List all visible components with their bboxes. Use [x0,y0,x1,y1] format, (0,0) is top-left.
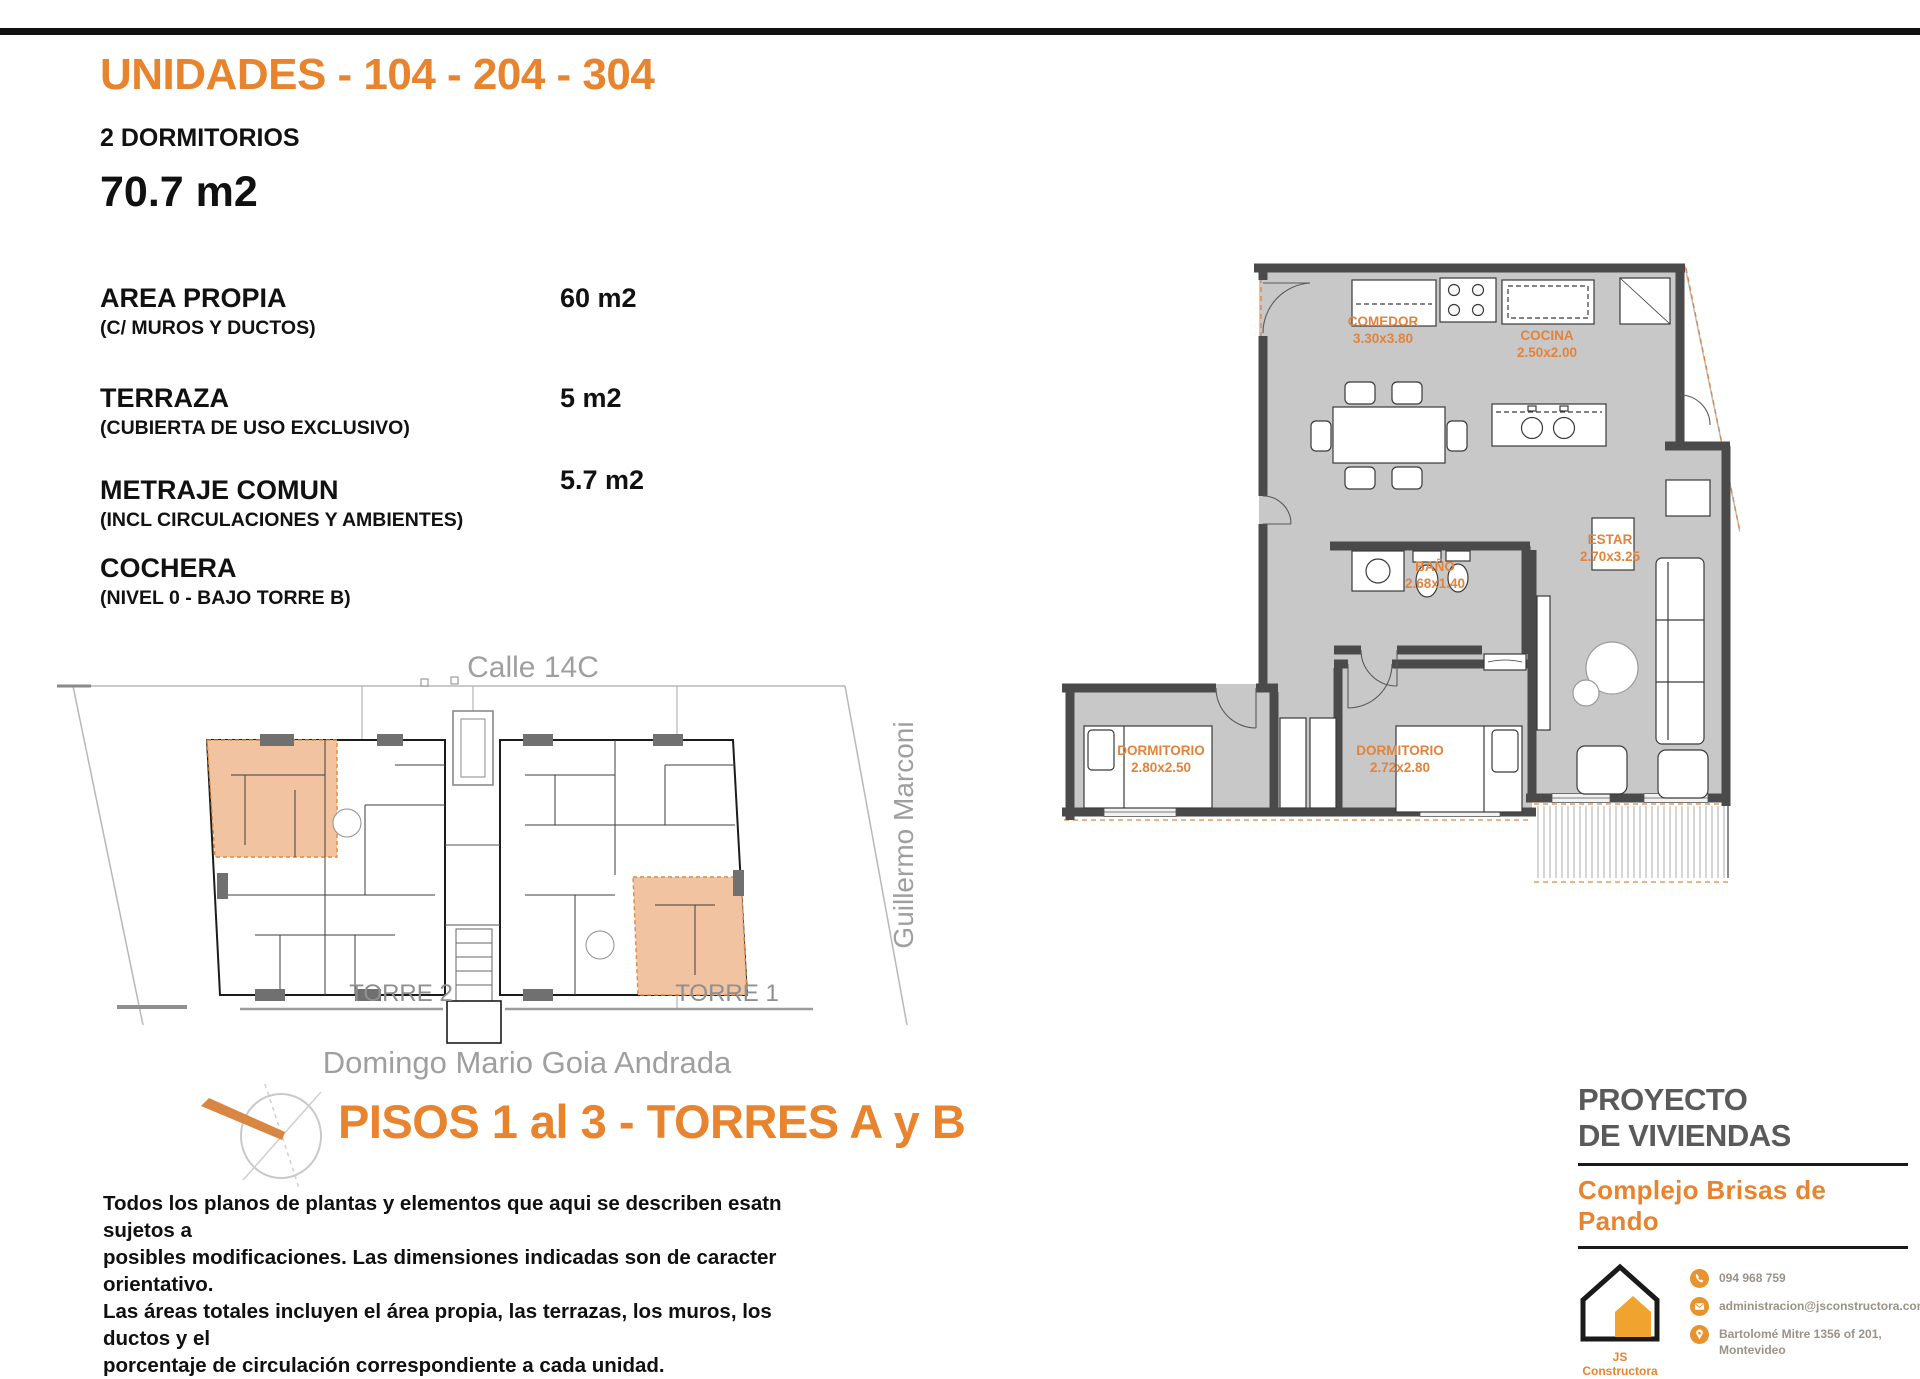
room-label-comedor: COMEDOR [1348,314,1419,329]
room-dims-dormitorio-2: 2.72x2.80 [1370,760,1430,775]
room-dims-dormitorio-1: 2.80x2.50 [1131,760,1191,775]
area-spec-table: AREA PROPIA (C/ MUROS Y DUCTOS) 60 m2 TE… [100,283,680,643]
project-branding-block: PROYECTO DE VIVIENDAS Complejo Brisas de… [1578,1082,1914,1378]
disclaimer-line: Las áreas totales incluyen el área propi… [103,1298,823,1352]
highlighted-unit-torre1 [633,877,747,995]
torre-2-footprint [207,734,445,1001]
survey-marker [421,679,428,686]
spec-value: 5 m2 [560,383,622,414]
street-address: Bartolomé Mitre 1356 of 201, Montevideo [1719,1325,1882,1358]
disclaimer-line: posibles modificaciones. Las dimensiones… [103,1244,823,1298]
spec-label: METRAJE COMUN [100,475,463,506]
survey-marker [451,677,458,684]
disclaimer: Todos los planos de plantas y elementos … [103,1190,823,1379]
contact-email-row: administracion@jsconstructora.com [1690,1297,1920,1316]
torre-1-label: TORRE 1 [675,980,779,1007]
spec-label: COCHERA [100,553,351,584]
top-rule [0,28,1920,35]
site-plan: Calle 14C [55,645,935,1085]
street-label-domingo: Domingo Mario Goia Andrada [323,1045,732,1080]
brand-row: JS Constructora 094 968 759 administraci… [1578,1263,1914,1378]
spec-row-area-propia: AREA PROPIA (C/ MUROS Y DUCTOS) [100,283,316,340]
address-line1: Bartolomé Mitre 1356 of 201, [1719,1327,1882,1341]
floor-plan-drawing: COMEDOR 3.30x3.80 COCINA 2.50x2.00 BAÑO … [1040,240,1740,890]
kitchen-island [1492,404,1606,446]
spec-label: AREA PROPIA [100,283,316,314]
complex-name: Complejo Brisas de Pando [1578,1175,1914,1237]
contact-address-row: Bartolomé Mitre 1356 of 201, Montevideo [1690,1325,1920,1358]
contact-phone-row: 094 968 759 [1690,1269,1920,1288]
torre-2-label: TORRE 2 [349,980,453,1007]
spec-value: 5.7 m2 [560,465,644,496]
project-title-line2: DE VIVIENDAS [1578,1118,1914,1154]
room-label-cocina: COCINA [1520,328,1573,343]
company-logo: JS Constructora [1578,1263,1662,1378]
terrace-deck [1538,806,1728,878]
company-name: JS Constructora [1578,1350,1662,1378]
north-compass-icon [193,1080,348,1192]
highlighted-unit-torre2 [207,740,337,857]
address-line2: Montevideo [1719,1343,1786,1357]
room-dims-comedor: 3.30x3.80 [1353,331,1413,346]
room-dims-bano: 2.68x1.40 [1405,576,1465,591]
divider-rule [1578,1246,1908,1249]
spec-sublabel: (CUBIERTA DE USO EXCLUSIVO) [100,417,410,440]
room-dims-cocina: 2.50x2.00 [1517,345,1577,360]
spec-value: 60 m2 [560,283,637,314]
room-label-bano: BAÑO [1415,559,1455,574]
phone-icon [1690,1269,1709,1288]
spec-row-cochera: COCHERA (NIVEL 0 - BAJO TORRE B) [100,553,351,610]
spec-sublabel: (C/ MUROS Y DUCTOS) [100,317,316,340]
page-title: UNIDADES - 104 - 204 - 304 [100,50,654,100]
total-area: 70.7 m2 [100,168,258,217]
spec-row-terraza: TERRAZA (CUBIERTA DE USO EXCLUSIVO) [100,383,410,440]
divider-rule [1578,1163,1908,1166]
location-pin-icon [1690,1325,1709,1344]
contact-list: 094 968 759 administracion@jsconstructor… [1690,1263,1920,1358]
email-address: administracion@jsconstructora.com [1719,1297,1920,1315]
pisos-heading: PISOS 1 al 3 - TORRES A y B [338,1094,965,1149]
street-label-calle-14c: Calle 14C [467,651,599,684]
room-label-dormitorio-2: DORMITORIO [1356,743,1444,758]
street-label-marconi: Guillermo Marconi [888,721,919,948]
room-label-dormitorio-1: DORMITORIO [1117,743,1205,758]
central-corridor [445,711,501,1043]
stairs [456,929,492,1001]
plant [1573,680,1599,706]
disclaimer-line: porcentaje de circulación correspondient… [103,1352,823,1379]
apartment-floor-plan: COMEDOR 3.30x3.80 COCINA 2.50x2.00 BAÑO … [1040,240,1740,890]
disclaimer-line: Todos los planos de plantas y elementos … [103,1190,823,1244]
project-title-line1: PROYECTO [1578,1082,1914,1118]
site-plan-drawing: Calle 14C [55,645,935,1085]
mail-icon [1690,1297,1709,1316]
phone-number: 094 968 759 [1719,1269,1786,1287]
room-dims-estar: 2.70x3.25 [1580,549,1641,564]
spec-label: TERRAZA [100,383,410,414]
torre-1-footprint [500,734,747,1001]
spec-row-metraje-comun: METRAJE COMUN (INCL CIRCULACIONES Y AMBI… [100,475,463,532]
spec-sublabel: (NIVEL 0 - BAJO TORRE B) [100,587,351,610]
spec-sublabel: (INCL CIRCULACIONES Y AMBIENTES) [100,509,463,532]
room-label-estar: ESTAR [1588,532,1633,547]
bedrooms-subtitle: 2 DORMITORIOS [100,124,300,153]
street-exit-structure [447,1001,501,1043]
